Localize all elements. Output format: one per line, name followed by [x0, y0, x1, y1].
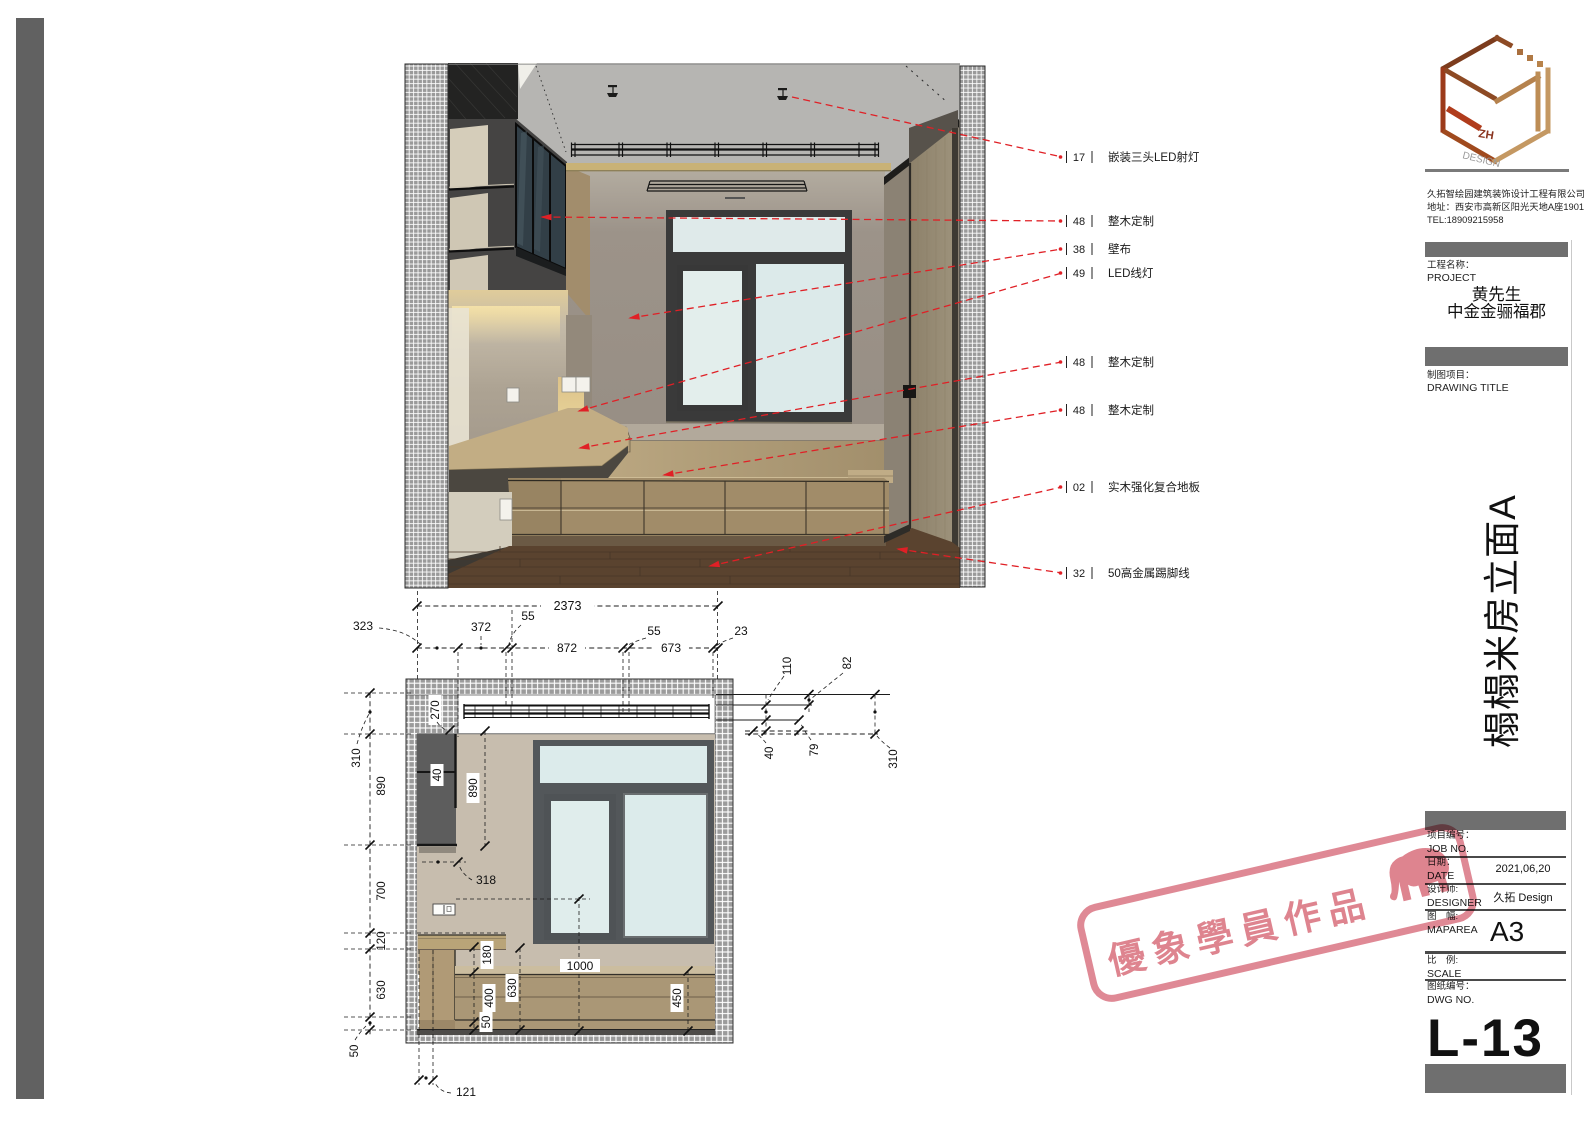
svg-text:673: 673: [661, 641, 681, 655]
svg-text:323: 323: [353, 619, 373, 633]
svg-text:50高金属踢脚线: 50高金属踢脚线: [1108, 566, 1190, 580]
svg-text:55: 55: [521, 609, 535, 623]
svg-text:实木强化复合地板: 实木强化复合地板: [1108, 480, 1200, 494]
svg-text:630: 630: [507, 978, 519, 997]
svg-text:110: 110: [782, 657, 794, 675]
svg-text:嵌装三头LED射灯: 嵌装三头LED射灯: [1108, 150, 1200, 164]
svg-text:1000: 1000: [567, 959, 594, 973]
svg-text:48: 48: [1073, 216, 1085, 228]
svg-text:372: 372: [471, 620, 491, 634]
svg-text:02: 02: [1073, 482, 1085, 494]
svg-text:700: 700: [376, 881, 388, 900]
svg-text:310: 310: [888, 749, 900, 768]
svg-text:270: 270: [430, 700, 442, 719]
svg-text:50: 50: [349, 1045, 361, 1058]
svg-text:40: 40: [432, 769, 444, 782]
svg-text:整木定制: 整木定制: [1108, 214, 1154, 228]
svg-text:890: 890: [468, 778, 480, 797]
svg-text:450: 450: [672, 988, 684, 1007]
svg-text:120: 120: [376, 931, 388, 950]
svg-text:630: 630: [376, 980, 388, 999]
svg-text:79: 79: [809, 744, 821, 757]
svg-text:23: 23: [734, 624, 748, 638]
svg-text:82: 82: [842, 657, 854, 670]
svg-text:55: 55: [647, 624, 661, 638]
svg-text:318: 318: [476, 873, 496, 887]
svg-text:50: 50: [481, 1016, 493, 1029]
svg-text:121: 121: [456, 1085, 476, 1099]
svg-text:49: 49: [1073, 268, 1085, 280]
svg-text:32: 32: [1073, 568, 1085, 580]
svg-text:872: 872: [557, 641, 577, 655]
svg-text:ZH: ZH: [1478, 128, 1495, 142]
svg-text:400: 400: [484, 988, 496, 1007]
svg-text:LED线灯: LED线灯: [1108, 266, 1154, 280]
svg-text:17: 17: [1073, 152, 1085, 164]
svg-text:2373: 2373: [554, 599, 582, 613]
svg-text:180: 180: [482, 945, 494, 964]
svg-text:48: 48: [1073, 405, 1085, 417]
svg-text:38: 38: [1073, 244, 1085, 256]
svg-text:890: 890: [376, 776, 388, 795]
svg-text:整木定制: 整木定制: [1108, 403, 1154, 417]
svg-text:48: 48: [1073, 357, 1085, 369]
svg-text:整木定制: 整木定制: [1108, 355, 1154, 369]
svg-text:310: 310: [351, 748, 363, 767]
svg-text:40: 40: [764, 747, 776, 760]
svg-text:壁布: 壁布: [1108, 242, 1131, 256]
